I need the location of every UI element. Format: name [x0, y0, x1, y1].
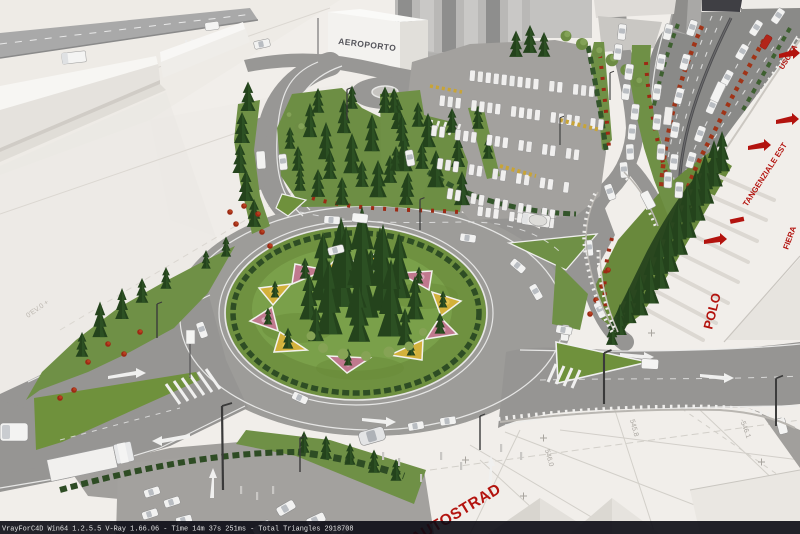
- svg-text:VrayForC4D Win64 1.2.5.5 V-Ray: VrayForC4D Win64 1.2.5.5 V-Ray 1.66.06 -…: [2, 526, 353, 534]
